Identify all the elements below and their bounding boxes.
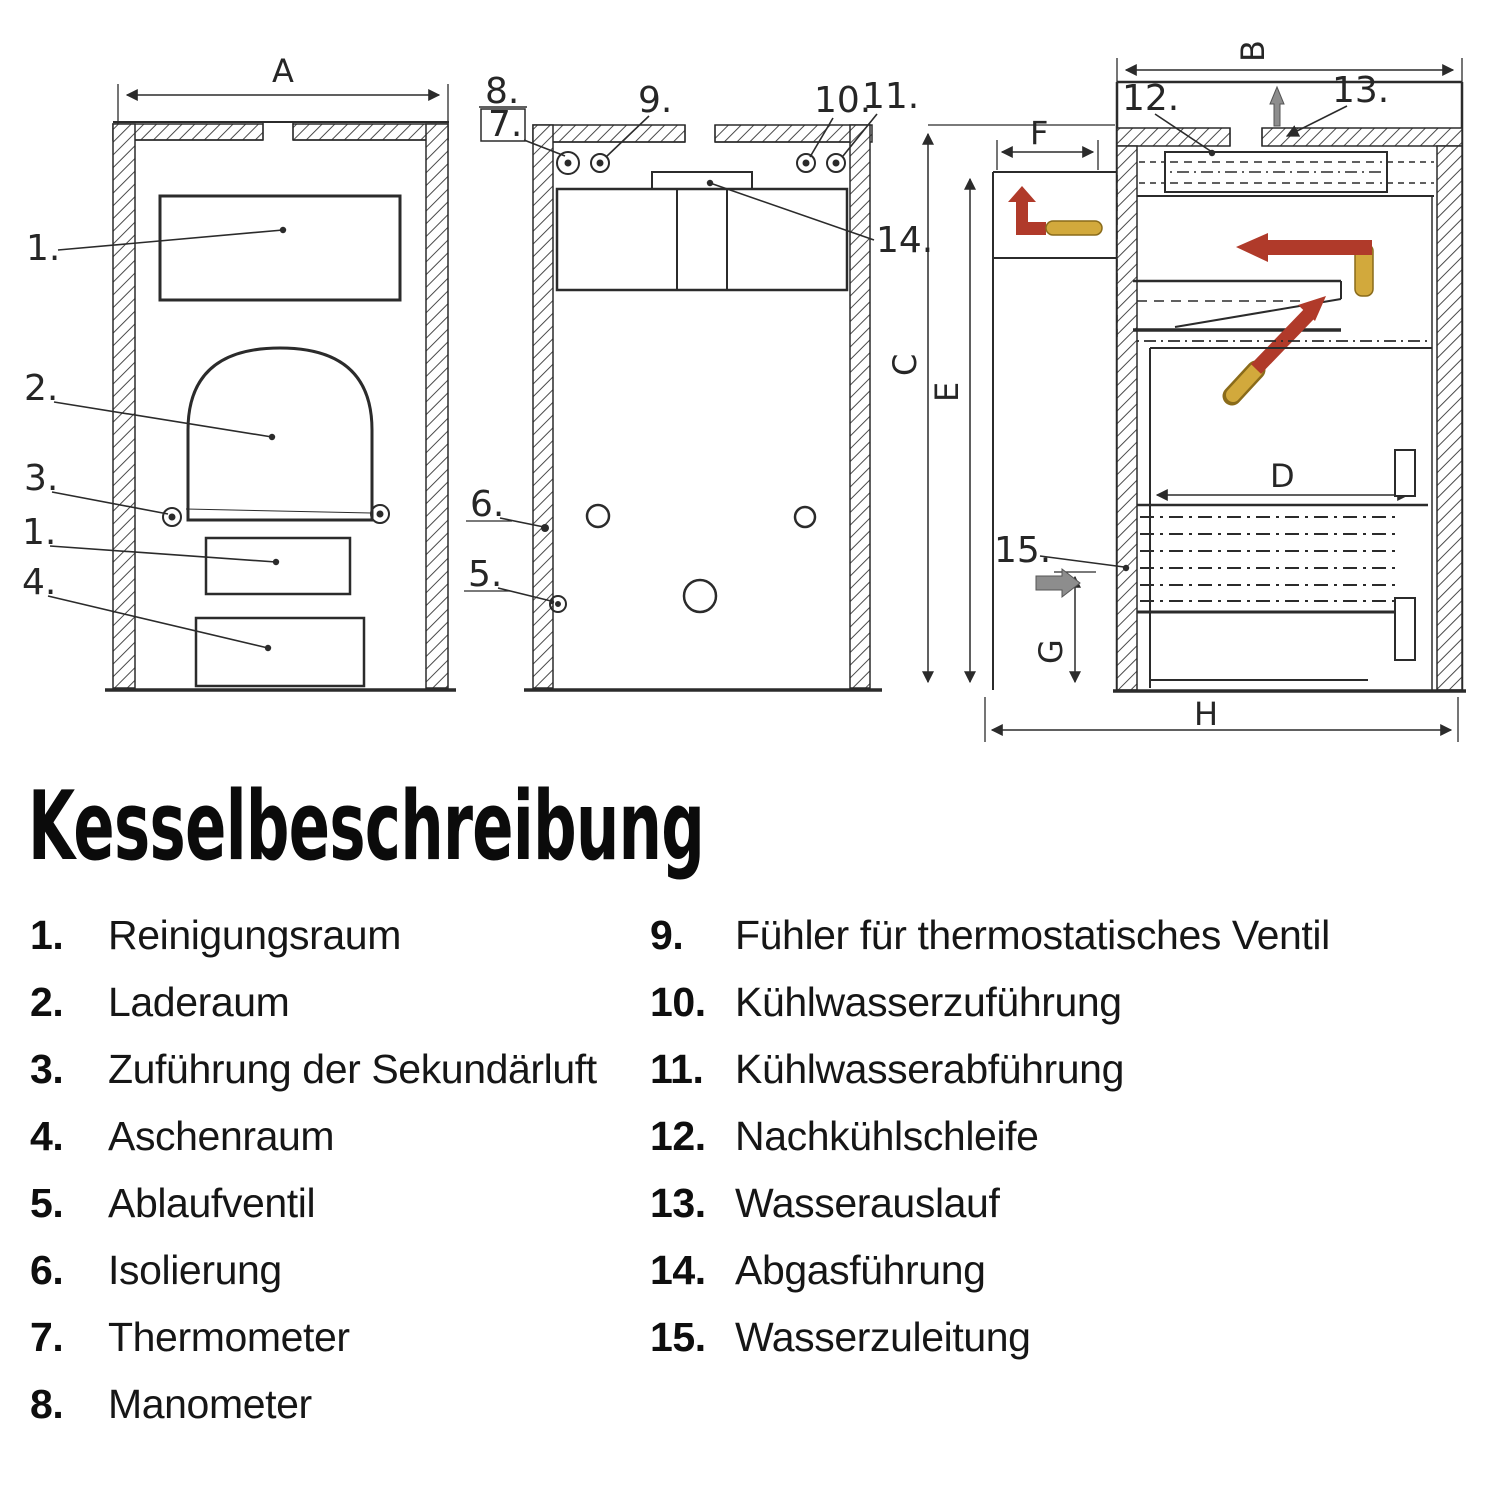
legend-item-right-3: 11. Kühlwasserabführung [650, 1046, 1470, 1113]
callout-5: 5. [468, 554, 502, 595]
legend-title: Kesselbeschreibung [28, 772, 704, 882]
callout-1: 1. [26, 228, 60, 269]
callout-3: 3. [24, 458, 58, 499]
legend-item-label: Nachkühlschleife [735, 1113, 1039, 1160]
front-view [464, 107, 882, 690]
legend-item-label: Fühler für thermostatisches Ventil [735, 912, 1330, 959]
callout-11: 11. [862, 76, 919, 117]
legend-item-number: 12. [650, 1113, 735, 1160]
legend-item-left-1: 1. Reinigungsraum [30, 912, 640, 979]
legend-item-number: 14. [650, 1247, 735, 1294]
callout-4: 4. [22, 562, 56, 603]
legend-item-label: Manometer [108, 1381, 312, 1428]
dim-label-g: G [1032, 639, 1070, 664]
water-inlet-arrow-icon [1036, 569, 1080, 597]
dim-label-e: E [928, 382, 966, 402]
callout-6: 6. [470, 484, 504, 525]
legend-item-number: 9. [650, 912, 735, 959]
legend-item-number: 5. [30, 1180, 108, 1227]
legend-item-number: 6. [30, 1247, 108, 1294]
flue-flow-arrow-icon [1268, 240, 1372, 255]
legend-item-number: 1. [30, 912, 108, 959]
legend-col-right: 9. Fühler für thermostatisches Ventil 10… [650, 912, 1470, 1381]
legend-item-right-1: 9. Fühler für thermostatisches Ventil [650, 912, 1470, 979]
legend-item-number: 13. [650, 1180, 735, 1227]
legend-item-left-2: 2. Laderaum [30, 979, 640, 1046]
dim-label-d: D [1270, 457, 1295, 495]
legend-item-left-6: 6. Isolierung [30, 1247, 640, 1314]
scanned-boiler-manual-page: A B C D E F G H 1. 2. 3. 1. 4. 5. 6. 7. … [0, 0, 1500, 1500]
front-section-view [48, 84, 456, 690]
legend-item-number: 10. [650, 979, 735, 1026]
callout-9: 9. [638, 80, 672, 121]
legend-item-number: 7. [30, 1314, 108, 1361]
water-pipe-icon [1046, 221, 1102, 235]
legend-item-label: Wasserzuleitung [735, 1314, 1031, 1361]
water-up-arrow-icon [1008, 186, 1036, 222]
legend-item-number: 2. [30, 979, 108, 1026]
callout-2: 2. [24, 368, 58, 409]
legend-item-label: Reinigungsraum [108, 912, 401, 959]
legend-item-label: Zuführung der Sekundärluft [108, 1046, 597, 1093]
flow-up-arrow-icon [1270, 87, 1284, 126]
legend-item-label: Abgasführung [735, 1247, 986, 1294]
dim-label-f: F [1030, 114, 1048, 152]
legend-item-right-2: 10. Kühlwasserzuführung [650, 979, 1470, 1046]
boiler-diagram: A B C D E F G H 1. 2. 3. 1. 4. 5. 6. 7. … [0, 0, 1500, 760]
legend-item-number: 11. [650, 1046, 735, 1093]
legend-item-right-4: 12. Nachkühlschleife [650, 1113, 1470, 1180]
legend-item-left-3: 3. Zuführung der Sekundärluft [30, 1046, 640, 1113]
callout-12: 12. [1122, 78, 1179, 119]
legend-item-right-6: 14. Abgasführung [650, 1247, 1470, 1314]
callout-8: 8. [485, 71, 519, 112]
legend-item-number: 4. [30, 1113, 108, 1160]
callout-15: 15. [994, 530, 1051, 571]
legend-item-label: Wasserauslauf [735, 1180, 999, 1227]
callout-13: 13. [1332, 70, 1389, 111]
legend-item-label: Kühlwasserzuführung [735, 979, 1122, 1026]
legend-item-label: Kühlwasserabführung [735, 1046, 1124, 1093]
legend-item-label: Isolierung [108, 1247, 282, 1294]
legend-item-label: Ablaufventil [108, 1180, 315, 1227]
legend-item-label: Aschenraum [108, 1113, 334, 1160]
side-section-view [928, 58, 1466, 742]
legend-item-label: Thermometer [108, 1314, 350, 1361]
legend-col-left: 1. Reinigungsraum 2. Laderaum 3. Zuführu… [30, 912, 640, 1448]
dim-label-c: C [886, 354, 924, 376]
callout-14: 14. [876, 220, 933, 261]
legend-item-label: Laderaum [108, 979, 289, 1026]
callout-1b: 1. [22, 512, 56, 553]
legend-item-left-7: 7. Thermometer [30, 1314, 640, 1381]
dim-label-a: A [272, 52, 294, 90]
legend-item-number: 8. [30, 1381, 108, 1428]
dim-label-b: B [1234, 40, 1272, 62]
legend-item-right-5: 13. Wasserauslauf [650, 1180, 1470, 1247]
legend-item-number: 15. [650, 1314, 735, 1361]
legend-item-left-4: 4. Aschenraum [30, 1113, 640, 1180]
legend-item-left-8: 8. Manometer [30, 1381, 640, 1448]
legend-item-left-5: 5. Ablaufventil [30, 1180, 640, 1247]
legend-item-right-7: 15. Wasserzuleitung [650, 1314, 1470, 1381]
dim-label-h: H [1194, 695, 1218, 733]
legend-item-number: 3. [30, 1046, 108, 1093]
